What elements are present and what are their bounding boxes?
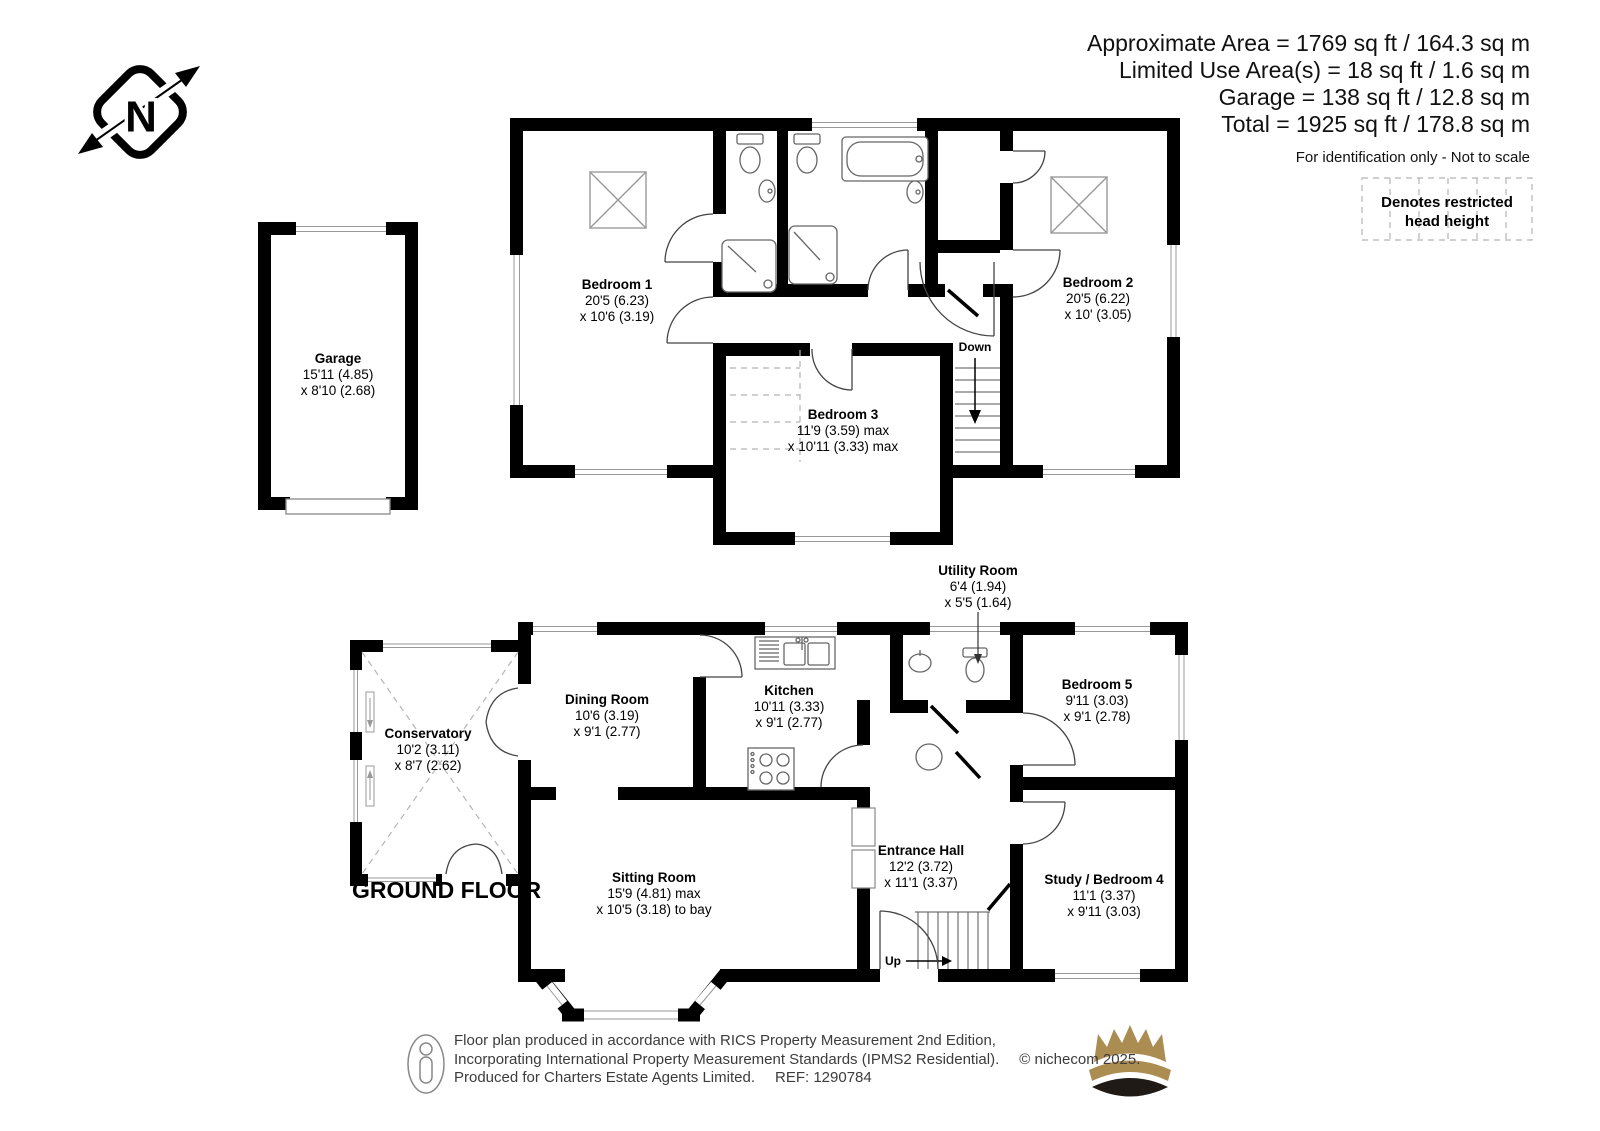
- svg-text:x 9'1 (2.77): x 9'1 (2.77): [755, 715, 822, 730]
- svg-text:12'2 (3.72): 12'2 (3.72): [889, 859, 953, 874]
- garage-area-line: Garage = 138 sq ft / 12.8 sq m: [1087, 84, 1530, 111]
- svg-text:11'1 (3.37): 11'1 (3.37): [1072, 888, 1135, 903]
- label-bedroom2: Bedroom 2: [1063, 275, 1134, 290]
- label-bedroom3: Bedroom 3: [808, 407, 879, 422]
- limited-use-area-line: Limited Use Area(s) = 18 sq ft / 1.6 sq …: [1087, 57, 1530, 84]
- footer-copyright: © nichecom 2025.: [1019, 1051, 1140, 1068]
- label-stairs-down: Down: [959, 340, 992, 354]
- svg-text:10'11 (3.33): 10'11 (3.33): [754, 699, 825, 714]
- kitchen-hob: [748, 748, 794, 790]
- svg-text:x 10'6 (3.19): x 10'6 (3.19): [580, 309, 655, 324]
- svg-text:x 11'1 (3.37): x 11'1 (3.37): [884, 875, 958, 890]
- svg-text:6'4 (1.94): 6'4 (1.94): [950, 579, 1007, 594]
- svg-text:15'11 (4.85): 15'11 (4.85): [303, 367, 374, 382]
- label-stairs-up: Up: [885, 954, 901, 968]
- area-summary: Approximate Area = 1769 sq ft / 164.3 sq…: [1087, 30, 1530, 171]
- svg-text:10'6 (3.19): 10'6 (3.19): [575, 708, 639, 723]
- svg-text:x 9'1 (2.77): x 9'1 (2.77): [573, 724, 640, 739]
- svg-text:x 5'5 (1.64): x 5'5 (1.64): [944, 595, 1011, 610]
- kitchen-sink-unit: [755, 637, 835, 669]
- legend-line1: Denotes restricted: [1381, 194, 1513, 211]
- svg-text:9'11 (3.03): 9'11 (3.03): [1065, 693, 1128, 708]
- legend-line2: head height: [1405, 213, 1489, 230]
- first-floor-plan: [510, 118, 1180, 545]
- svg-text:20'5 (6.23): 20'5 (6.23): [585, 293, 649, 308]
- svg-text:x 10'5 (3.18) to bay: x 10'5 (3.18) to bay: [596, 902, 711, 917]
- footer-ref: REF: 1290784: [775, 1069, 872, 1086]
- label-kitchen: Kitchen: [764, 683, 814, 698]
- label-dining-room: Dining Room: [565, 692, 649, 707]
- svg-text:x 8'7 (2.62): x 8'7 (2.62): [394, 758, 461, 773]
- label-bedroom5: Bedroom 5: [1062, 677, 1133, 692]
- svg-text:x 10'11 (3.33) max: x 10'11 (3.33) max: [788, 439, 899, 454]
- label-sitting-room: Sitting Room: [612, 870, 696, 885]
- garage-window: [296, 222, 386, 235]
- disclaimer-text: For identification only - Not to scale: [1087, 144, 1530, 171]
- compass-north-label: N: [125, 93, 157, 142]
- label-bedroom1: Bedroom 1: [582, 277, 653, 292]
- ground-floor-plan: [350, 612, 1188, 1019]
- svg-text:x 9'1 (2.78): x 9'1 (2.78): [1063, 709, 1130, 724]
- svg-text:x 9'11 (3.03): x 9'11 (3.03): [1067, 904, 1141, 919]
- compass-rose: N: [78, 63, 200, 162]
- label-entrance-hall: Entrance Hall: [878, 843, 964, 858]
- footer-line3: Produced for Charters Estate Agents Limi…: [454, 1069, 755, 1086]
- footer-line1: Floor plan produced in accordance with R…: [454, 1032, 1140, 1051]
- approximate-area-line: Approximate Area = 1769 sq ft / 164.3 sq…: [1087, 30, 1530, 57]
- floor-plan-page: N Denotes restricted head height: [0, 0, 1600, 1131]
- total-area-line: Total = 1925 sq ft / 178.8 sq m: [1087, 111, 1530, 138]
- svg-text:11'9 (3.59) max: 11'9 (3.59) max: [797, 423, 890, 438]
- svg-text:10'2 (3.11): 10'2 (3.11): [396, 742, 459, 757]
- restricted-height-legend: Denotes restricted head height: [1362, 178, 1532, 240]
- svg-text:15'9 (4.81) max: 15'9 (4.81) max: [607, 886, 701, 901]
- label-utility-room: Utility Room: [938, 563, 1018, 578]
- svg-text:x 8'10 (2.68): x 8'10 (2.68): [301, 383, 376, 398]
- svg-text:20'5 (6.22): 20'5 (6.22): [1066, 291, 1130, 306]
- footer-credit: Floor plan produced in accordance with R…: [404, 1032, 1140, 1088]
- svg-text:x 10' (3.05): x 10' (3.05): [1064, 307, 1131, 322]
- label-garage: Garage: [315, 351, 362, 366]
- garage-door: [286, 497, 390, 514]
- label-study-bedroom4: Study / Bedroom 4: [1044, 872, 1164, 887]
- label-ground-floor: GROUND FLOOR: [352, 877, 541, 903]
- footer-line2: Incorporating International Property Mea…: [454, 1051, 999, 1068]
- label-conservatory: Conservatory: [384, 726, 472, 741]
